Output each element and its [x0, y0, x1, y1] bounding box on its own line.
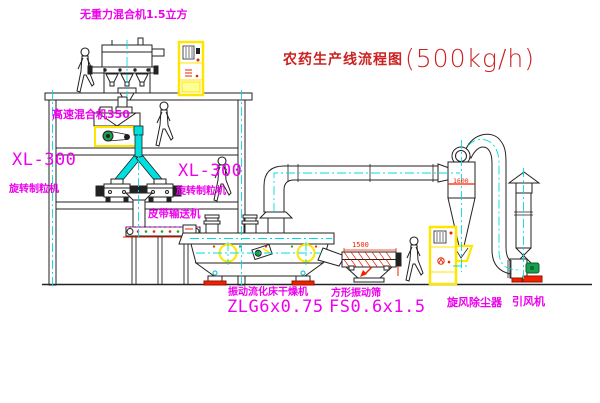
granulator-left-label: 旋转制粒机 [9, 185, 59, 195]
granulator-right-model: XL-300 [178, 163, 242, 180]
diagram-title: 农药生产线流程图 (500kg/h) [283, 44, 535, 73]
control-cabinet-lower [430, 227, 456, 284]
exhaust-duct [260, 164, 452, 233]
gravity-free-mixer [88, 38, 164, 100]
square-vibrating-screen [342, 248, 401, 282]
dryer-model: ZLG6x0.75 [227, 299, 324, 316]
fluidized-bed-dryer [179, 215, 345, 285]
control-cabinet-upper [179, 42, 203, 95]
belt-conveyor-label: 皮带输送机 [148, 209, 201, 220]
granulator-left-model: XL-300 [12, 152, 76, 169]
floor2-beam [56, 148, 238, 155]
screen-model: FS0.6x1.5 [329, 299, 426, 316]
high-speed-mixer-label: 高速混合机350 [52, 109, 130, 120]
person-figure-ground [406, 237, 423, 281]
diagram-title-text: 农药生产线流程图 [283, 49, 403, 69]
induced-draft-fan [508, 259, 542, 282]
high-speed-mixer [94, 97, 140, 146]
cyclone-height-dimension: 1600 [453, 178, 469, 185]
floor3-beam [56, 202, 238, 209]
person-figure-floor2 [156, 102, 173, 146]
screen-width-dimension: 1500 [352, 242, 369, 249]
cyclone-outlet-pipe [466, 134, 521, 277]
gravity-mixer-label: 无重力混合机1.5立方 [80, 9, 188, 20]
diagram-title-capacity: (500kg/h) [405, 44, 535, 73]
cyclone-label: 旋风除尘器 [447, 297, 502, 308]
fan-label: 引风机 [512, 296, 545, 307]
roof-beam [45, 93, 252, 100]
granulator-right-label: 旋转制粒机 [176, 187, 226, 197]
exhaust-stack [509, 172, 539, 263]
flow-diagram-canvas: 农药生产线流程图 (500kg/h) 无重力混合机1.5立方 高速混合机350 … [0, 0, 600, 403]
